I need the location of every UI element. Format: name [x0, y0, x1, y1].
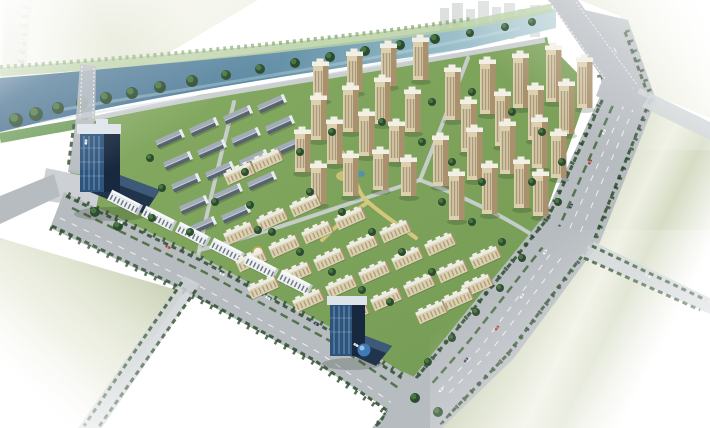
tree: [478, 178, 486, 186]
apartment-tower: [447, 169, 467, 226]
tree: [554, 198, 562, 206]
tree: [328, 128, 336, 136]
tree: [358, 286, 366, 294]
tree: [368, 228, 376, 236]
apartment-tower: [431, 133, 451, 192]
apartment-tower: [411, 35, 431, 86]
tree: [158, 184, 166, 192]
tree: [306, 188, 314, 196]
tree: [468, 218, 476, 226]
rendering-canvas: [0, 0, 710, 428]
tree: [558, 158, 566, 166]
tree: [430, 34, 440, 44]
apartment-tower: [341, 151, 361, 202]
tree: [254, 226, 262, 234]
tree: [410, 393, 420, 403]
aerial-rendering: [0, 0, 710, 428]
tree: [90, 207, 100, 217]
tree: [186, 228, 194, 236]
tree: [428, 98, 436, 106]
entrance-dome: [358, 344, 371, 357]
tree: [398, 248, 406, 256]
apartment-tower: [325, 117, 345, 170]
apartment-tower: [309, 93, 329, 146]
tree: [268, 228, 276, 236]
tree: [378, 118, 386, 126]
apartment-tower: [531, 169, 551, 222]
tree: [528, 178, 536, 186]
tree: [148, 214, 156, 222]
apartment-tower: [403, 87, 423, 138]
apartment-tower: [341, 83, 361, 138]
tree: [211, 198, 219, 206]
tree: [246, 201, 254, 209]
tree: [338, 208, 346, 216]
tree: [296, 148, 304, 156]
tree: [296, 248, 304, 256]
tree: [386, 298, 394, 306]
tree: [438, 198, 446, 206]
tree: [328, 268, 336, 276]
apartment-tower: [480, 161, 500, 220]
tree: [448, 158, 456, 166]
apartment-tower: [399, 155, 419, 202]
tree: [325, 52, 335, 62]
apartment-tower: [512, 157, 532, 214]
apartment-tower: [371, 147, 391, 196]
tree: [290, 58, 300, 68]
tree: [418, 138, 426, 146]
